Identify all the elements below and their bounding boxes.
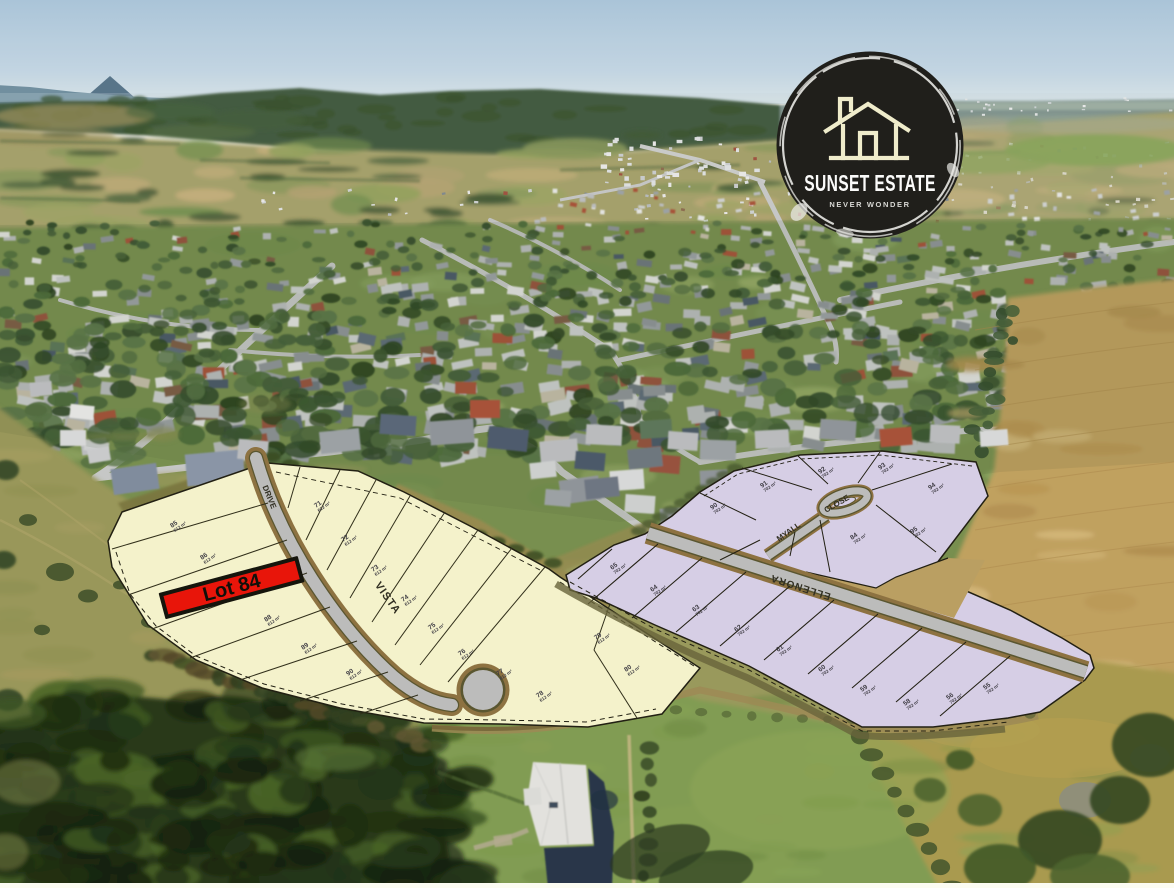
svg-text:SUNSET ESTATE: SUNSET ESTATE — [804, 171, 936, 197]
svg-text:NEVER WONDER: NEVER WONDER — [829, 200, 910, 209]
